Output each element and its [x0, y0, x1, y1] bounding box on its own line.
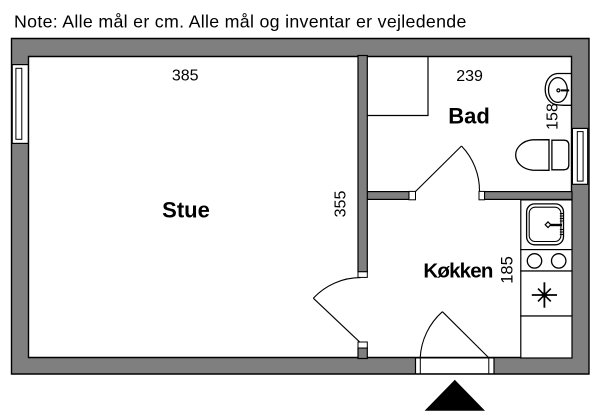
- svg-text:158: 158: [545, 103, 562, 130]
- svg-text:Stue: Stue: [162, 198, 210, 223]
- svg-text:Bad: Bad: [448, 104, 490, 129]
- svg-text:385: 385: [172, 68, 199, 85]
- svg-text:239: 239: [456, 68, 483, 85]
- svg-text:Note: Alle mål er cm. Alle mål: Note: Alle mål er cm. Alle mål og invent…: [14, 12, 467, 32]
- svg-text:355: 355: [332, 191, 349, 218]
- svg-text:Køkken: Køkken: [423, 259, 493, 282]
- svg-text:185: 185: [499, 256, 517, 284]
